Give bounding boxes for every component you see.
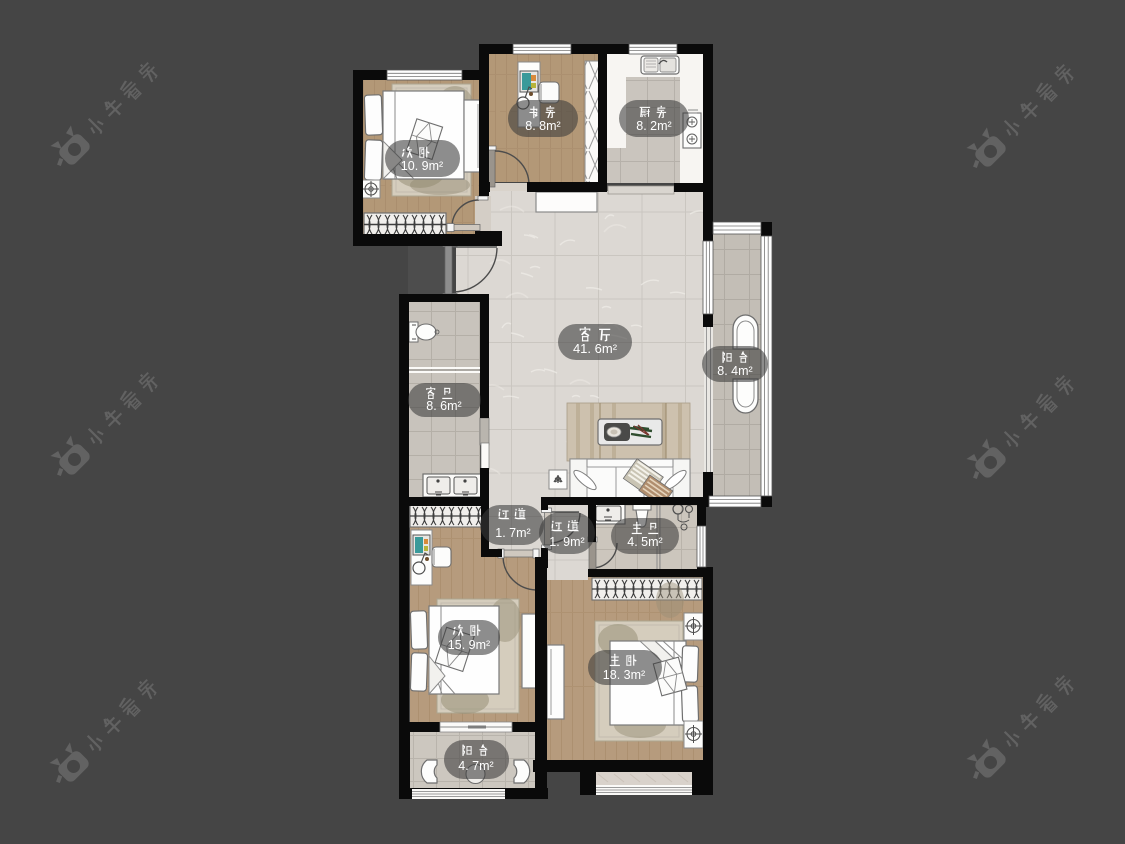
- svg-text:8. 6m²: 8. 6m²: [426, 399, 461, 413]
- svg-text:1. 9m²: 1. 9m²: [549, 535, 584, 549]
- svg-text:4. 5m²: 4. 5m²: [627, 535, 662, 549]
- svg-text:8. 8m²: 8. 8m²: [525, 119, 560, 133]
- svg-text:41. 6m²: 41. 6m²: [573, 341, 618, 356]
- svg-text:8. 2m²: 8. 2m²: [636, 119, 671, 133]
- svg-text:10. 9m²: 10. 9m²: [401, 159, 443, 173]
- svg-text:18. 3m²: 18. 3m²: [603, 668, 645, 682]
- svg-text:8. 4m²: 8. 4m²: [717, 364, 752, 378]
- svg-text:4. 7m²: 4. 7m²: [458, 759, 493, 773]
- svg-text:1. 7m²: 1. 7m²: [495, 526, 530, 540]
- svg-text:15. 9m²: 15. 9m²: [448, 638, 490, 652]
